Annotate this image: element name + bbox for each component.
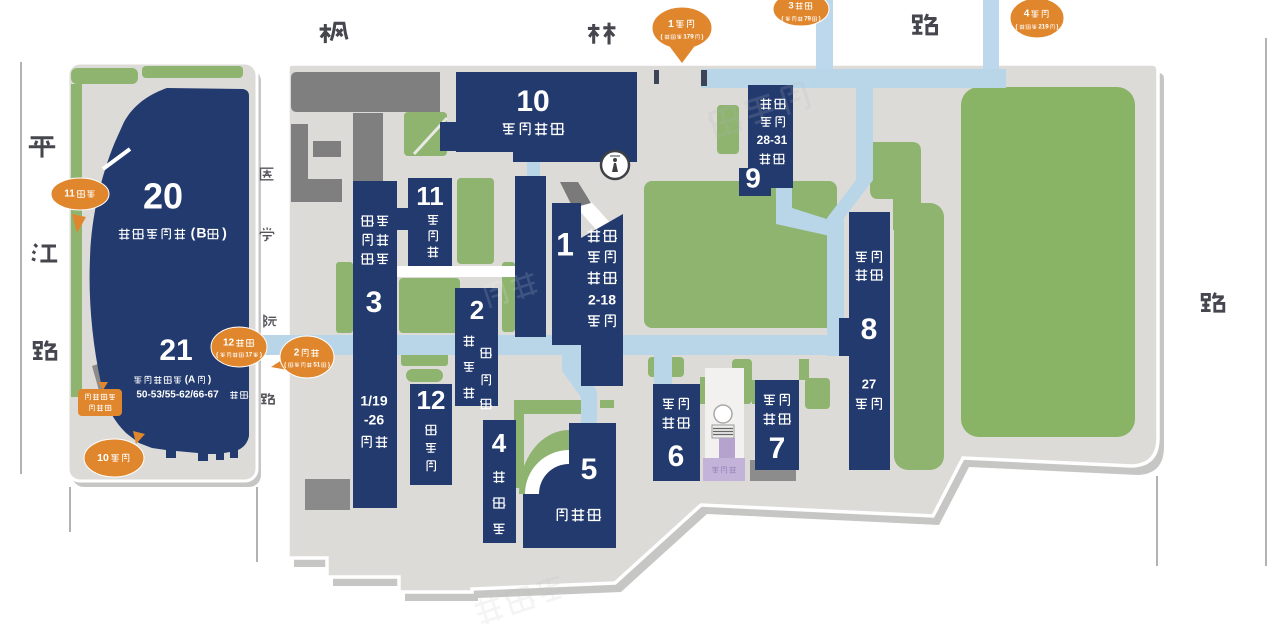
svg-text:(A: (A bbox=[185, 375, 196, 386]
svg-text:): ) bbox=[1056, 24, 1058, 31]
svg-text:27: 27 bbox=[862, 376, 876, 391]
svg-text:179: 179 bbox=[683, 34, 694, 41]
svg-text:9: 9 bbox=[745, 162, 761, 193]
svg-text:2-18: 2-18 bbox=[588, 292, 616, 308]
svg-text:2: 2 bbox=[294, 348, 300, 359]
svg-text:10: 10 bbox=[516, 85, 549, 118]
svg-text:1/19: 1/19 bbox=[360, 393, 387, 409]
svg-text:-26: -26 bbox=[364, 412, 384, 428]
svg-text:5: 5 bbox=[581, 453, 598, 486]
svg-text:12: 12 bbox=[223, 338, 235, 349]
svg-text:): ) bbox=[208, 375, 211, 386]
svg-text:11: 11 bbox=[64, 189, 75, 200]
svg-text:1: 1 bbox=[668, 18, 674, 30]
svg-text:17: 17 bbox=[245, 352, 252, 359]
svg-text:8: 8 bbox=[861, 313, 878, 346]
svg-text:): ) bbox=[222, 225, 227, 241]
svg-text:): ) bbox=[328, 362, 330, 369]
svg-text:12: 12 bbox=[417, 385, 446, 415]
svg-text:): ) bbox=[701, 34, 703, 41]
svg-text:28-31: 28-31 bbox=[757, 133, 788, 147]
svg-text:2: 2 bbox=[470, 295, 484, 325]
svg-text:51: 51 bbox=[313, 362, 320, 369]
svg-text:1: 1 bbox=[556, 226, 574, 262]
svg-text:4: 4 bbox=[1024, 9, 1030, 20]
svg-text:6: 6 bbox=[668, 440, 685, 473]
svg-text:10: 10 bbox=[97, 452, 109, 464]
svg-text:20: 20 bbox=[143, 176, 183, 217]
svg-text:7: 7 bbox=[769, 432, 786, 465]
svg-text:(: ( bbox=[191, 225, 196, 241]
svg-text:21: 21 bbox=[159, 334, 192, 367]
svg-text:219: 219 bbox=[1038, 24, 1049, 31]
svg-text:4: 4 bbox=[492, 428, 507, 458]
svg-text:3: 3 bbox=[366, 286, 383, 319]
svg-text:): ) bbox=[819, 16, 821, 23]
svg-text:50-53/55-62/66-67: 50-53/55-62/66-67 bbox=[136, 390, 219, 401]
svg-text:3: 3 bbox=[788, 1, 793, 12]
svg-text:11: 11 bbox=[416, 181, 444, 211]
svg-text:79: 79 bbox=[804, 16, 811, 23]
svg-text:B: B bbox=[196, 225, 206, 241]
svg-text:): ) bbox=[260, 352, 262, 359]
